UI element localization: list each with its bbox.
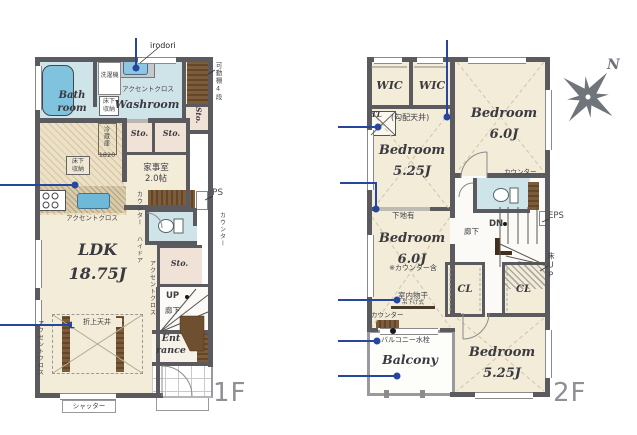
indoor-drying-label: 室内物干 bbox=[398, 291, 428, 300]
balcony-post bbox=[420, 390, 425, 398]
ps-box bbox=[196, 191, 208, 210]
accent-cloth-washroom-label: アクセントクロス bbox=[114, 85, 182, 93]
stair-handrail bbox=[495, 251, 512, 255]
bedroom-se-label: Bedroom 5.25J bbox=[466, 342, 538, 385]
wall bbox=[157, 245, 202, 248]
wall bbox=[450, 57, 455, 178]
top-light-label: TL bbox=[371, 110, 382, 120]
toilet-2f-floor bbox=[473, 178, 530, 213]
storage-2-label: Sto. bbox=[155, 128, 188, 138]
up-marker-dot bbox=[185, 295, 189, 299]
wall bbox=[193, 208, 197, 226]
wall bbox=[186, 130, 213, 134]
balcony-post bbox=[384, 390, 389, 398]
toilet-1f-floor bbox=[145, 208, 197, 245]
storage-1-label: Sto. bbox=[124, 128, 155, 138]
accent-cloth-left-label: アクセントクロス bbox=[36, 320, 44, 382]
ldk-label: LDK 18.75J bbox=[55, 238, 140, 286]
window bbox=[35, 66, 42, 110]
floor-1f-label: 1F bbox=[213, 378, 247, 408]
accent-cloth-stair-label: アクセントクロス bbox=[148, 260, 156, 318]
irodori-label: irodori bbox=[150, 41, 176, 51]
counter-ne-label: カウンター bbox=[504, 168, 537, 176]
entrance-step bbox=[156, 398, 209, 411]
counter-included-label: ※カウンター含 bbox=[385, 264, 441, 273]
underfloor-storage-kitchen-label: 床下 収納 bbox=[66, 158, 90, 173]
bedroom-nw-label: Bedroom 5.25J bbox=[376, 140, 448, 183]
window bbox=[374, 57, 402, 64]
balcony-label: Balcony bbox=[378, 352, 442, 368]
closet-2-label: CL bbox=[502, 283, 545, 296]
window bbox=[380, 328, 438, 335]
toilet-2f-counter bbox=[528, 182, 539, 210]
washer-label: 洗濯機 bbox=[96, 72, 123, 80]
wall bbox=[445, 262, 485, 265]
wall bbox=[367, 207, 377, 211]
counter-sw-top bbox=[376, 320, 399, 328]
coffered-ceiling-label: 折上天井 bbox=[72, 318, 122, 327]
window bbox=[367, 235, 374, 297]
compass-north-label: N bbox=[607, 57, 620, 73]
ceiling-beam-left bbox=[62, 316, 70, 372]
washroom-label: Washroom bbox=[112, 98, 182, 112]
wic-1-label: WIC bbox=[367, 79, 412, 93]
base-board-label: 下地有 bbox=[392, 211, 415, 220]
balcony-faucet-dot bbox=[390, 328, 396, 334]
wall bbox=[145, 208, 197, 212]
movable-shelf-label: 可動棚4段 bbox=[214, 62, 222, 114]
stove bbox=[39, 190, 66, 211]
kitchen-sink bbox=[77, 193, 110, 209]
floor-2f-label: 2F bbox=[553, 378, 587, 408]
wall bbox=[440, 328, 455, 332]
entrance-label: Ent rance bbox=[153, 333, 189, 358]
eps-label: EPS bbox=[548, 211, 564, 222]
window bbox=[475, 392, 533, 399]
wall bbox=[35, 57, 213, 62]
down-marker-dot bbox=[503, 222, 507, 226]
wall bbox=[487, 313, 550, 317]
down-label: DN bbox=[489, 219, 503, 230]
window bbox=[60, 393, 116, 400]
counter-left-label: カウンター bbox=[135, 191, 143, 231]
hallway-1f-label: 廊下 bbox=[165, 306, 180, 315]
wall bbox=[152, 362, 213, 366]
wall bbox=[367, 105, 454, 109]
sloped-ceiling-label: (勾配天井) bbox=[391, 113, 429, 123]
wic-2-label: WIC bbox=[412, 79, 452, 93]
wall bbox=[367, 328, 378, 332]
wall bbox=[473, 178, 477, 213]
window bbox=[545, 90, 552, 150]
window bbox=[545, 330, 552, 378]
up-label: UP bbox=[166, 291, 179, 302]
storage-3-label: Sto. bbox=[157, 258, 202, 268]
wall bbox=[450, 244, 455, 317]
window bbox=[138, 57, 176, 64]
balcony-faucet-label: バルコニー水栓 bbox=[381, 336, 430, 345]
wall bbox=[182, 62, 186, 120]
hanging-type-label: 吊下げ式 bbox=[402, 300, 424, 307]
utility-room-label: 家事室 2.0帖 bbox=[124, 163, 188, 184]
wall bbox=[35, 118, 127, 123]
hallway-2f-label: 廊下 bbox=[464, 227, 479, 236]
window bbox=[468, 57, 526, 64]
closet-1-label: CL bbox=[445, 283, 485, 296]
wall bbox=[124, 152, 188, 155]
storage-side-label: Sto. bbox=[193, 107, 203, 123]
window bbox=[367, 130, 374, 190]
accent-cloth-kitchen-label: アクセントクロス bbox=[60, 214, 124, 222]
wall bbox=[145, 208, 149, 245]
floor-up-label: 床UP bbox=[546, 252, 555, 288]
floor-plan-canvas: irodori 可動棚4段 洗濯機 アクセントクロス Bath room 床下 … bbox=[0, 0, 637, 435]
dim-1820-label: 1820 bbox=[95, 151, 119, 159]
counter-right-label: カウンター bbox=[218, 212, 226, 262]
shutter-label: シャッター bbox=[62, 402, 116, 410]
wall bbox=[473, 209, 530, 213]
wall bbox=[450, 313, 461, 317]
movable-shelf-unit bbox=[187, 61, 208, 104]
wall bbox=[157, 284, 213, 287]
wall bbox=[450, 178, 455, 218]
window bbox=[417, 57, 443, 64]
window bbox=[35, 240, 42, 288]
wall bbox=[502, 262, 545, 265]
bathroom-label: Bath room bbox=[50, 89, 94, 115]
counter-sw-label: カウンター bbox=[371, 311, 404, 319]
bedroom-ne-label: Bedroom 6.0J bbox=[468, 103, 540, 146]
ps-label: PS bbox=[212, 188, 223, 199]
